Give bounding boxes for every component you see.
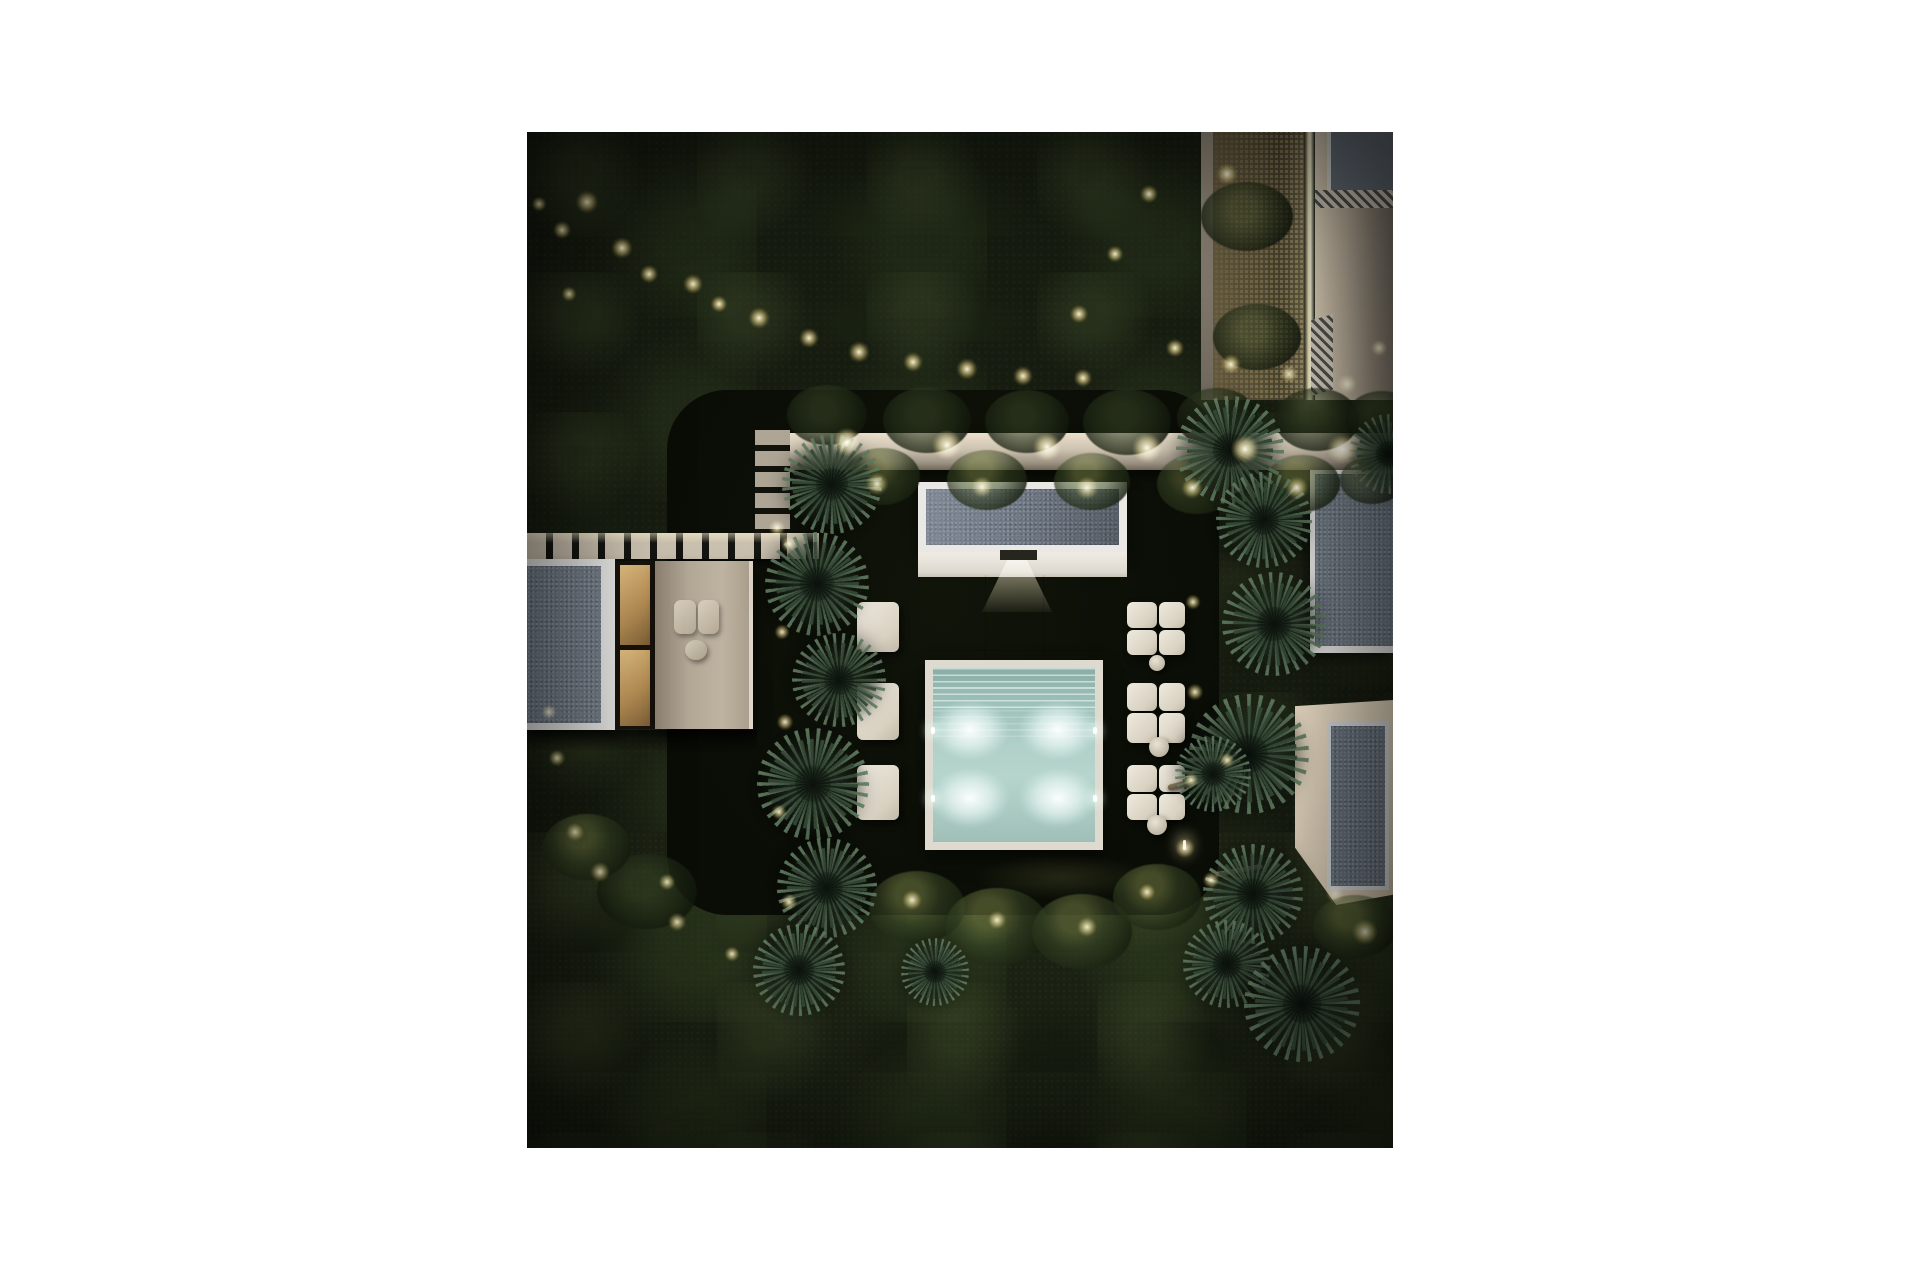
page-canvas: { "page": {"background_color": "#ffffff"…: [0, 0, 1920, 1280]
photo-vignette: [527, 132, 1393, 1148]
aerial-render-photo: [527, 132, 1393, 1148]
